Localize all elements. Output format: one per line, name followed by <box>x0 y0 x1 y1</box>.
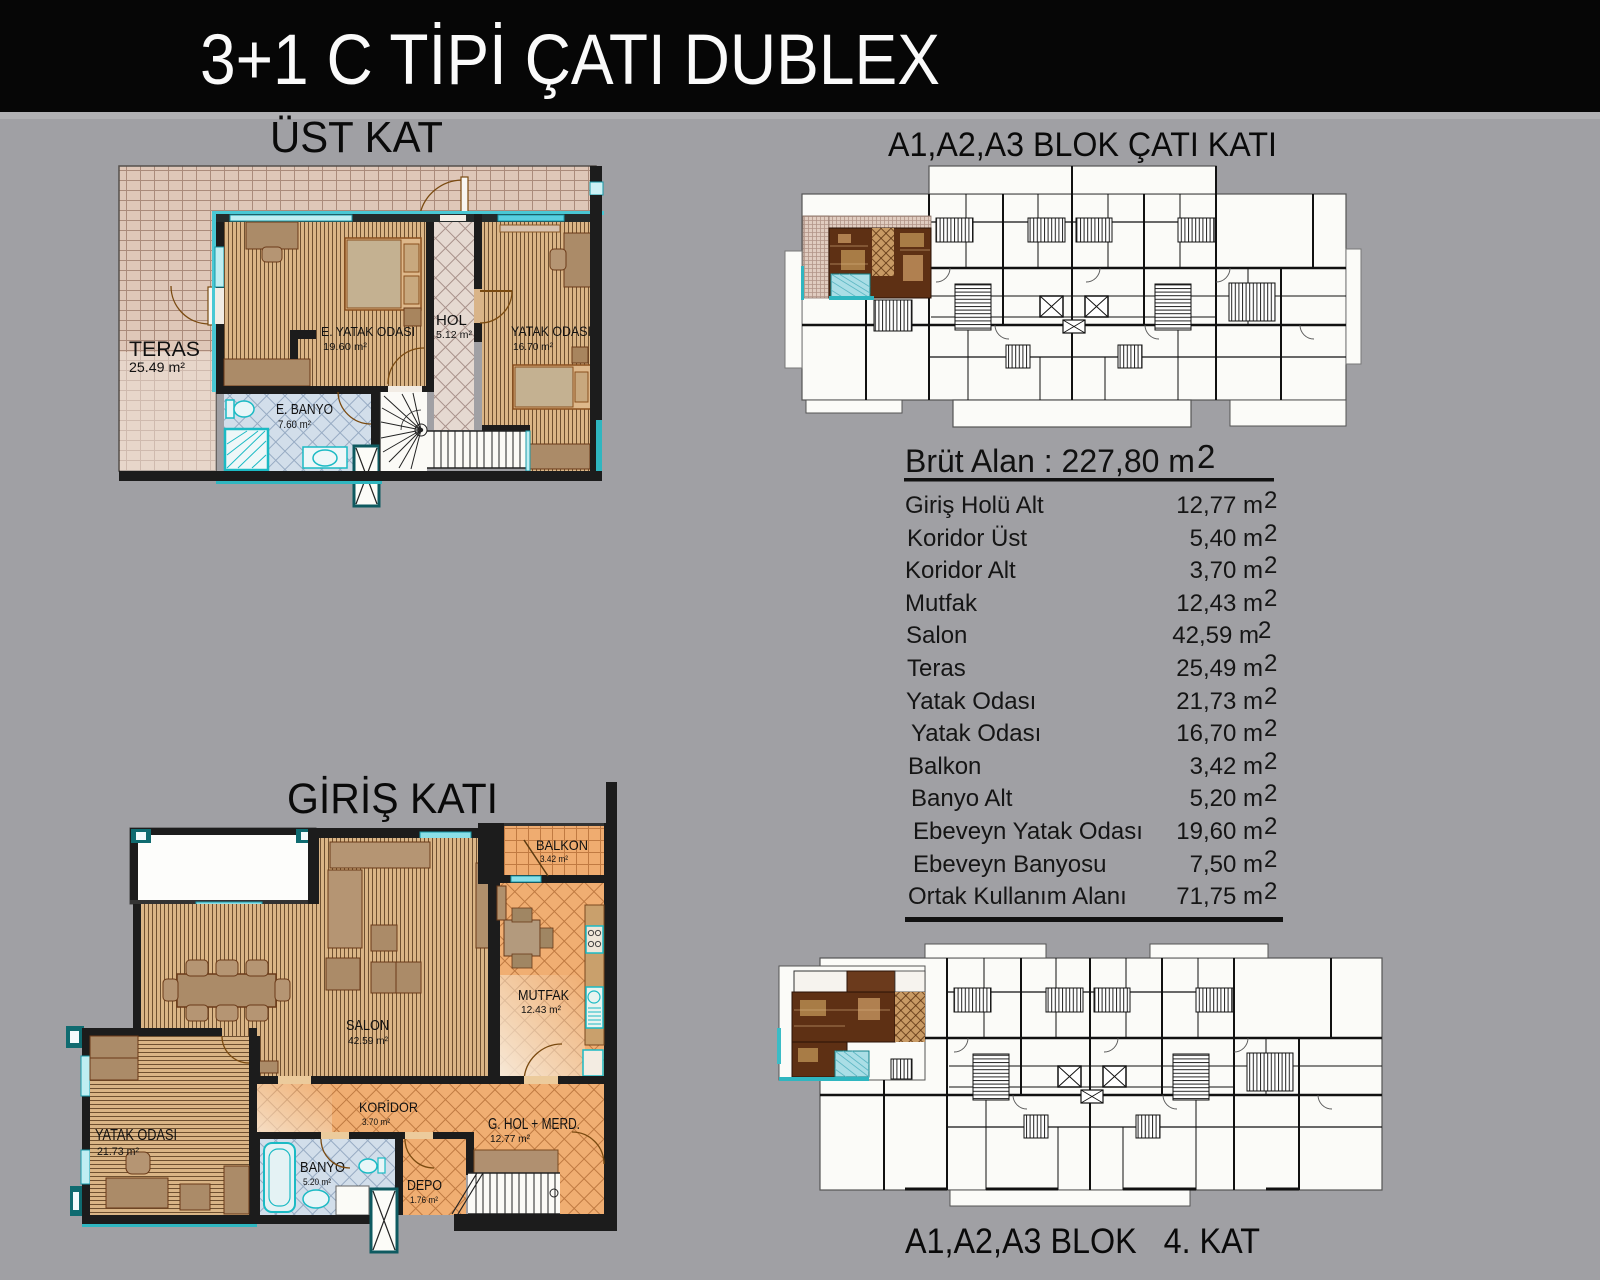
svg-text:2: 2 <box>1264 552 1277 579</box>
svg-text:Salon: Salon <box>906 622 967 649</box>
svg-text:12.43 m²: 12.43 m² <box>521 1004 561 1016</box>
svg-text:2: 2 <box>1264 813 1277 840</box>
svg-text:2: 2 <box>1264 878 1277 905</box>
svg-text:2: 2 <box>1264 520 1277 547</box>
svg-text:KORİDOR: KORİDOR <box>359 1098 418 1115</box>
svg-text:BANYO: BANYO <box>300 1159 345 1176</box>
svg-text:2: 2 <box>1197 438 1215 475</box>
svg-text:HOL: HOL <box>436 312 467 329</box>
svg-text:Teras: Teras <box>907 655 966 682</box>
svg-text:19,60 m: 19,60 m <box>1176 818 1263 845</box>
svg-text:G. HOL + MERD.: G. HOL + MERD. <box>488 1116 580 1133</box>
svg-text:SALON: SALON <box>346 1017 389 1034</box>
svg-text:3+1 C TİPİ ÇATI DUBLEX: 3+1 C TİPİ ÇATI DUBLEX <box>200 21 940 100</box>
svg-text:Yatak Odası: Yatak Odası <box>906 688 1036 715</box>
svg-text:2: 2 <box>1264 846 1277 873</box>
svg-text:2: 2 <box>1264 748 1277 775</box>
svg-text:Ebeveyn Banyosu: Ebeveyn Banyosu <box>913 851 1106 878</box>
svg-text:42.59 m²: 42.59 m² <box>348 1035 388 1047</box>
svg-text:19.60 m²: 19.60 m² <box>323 341 368 353</box>
svg-text:25,49 m: 25,49 m <box>1176 655 1263 682</box>
svg-text:21,73 m: 21,73 m <box>1176 688 1263 715</box>
svg-text:Giriş Holü Alt: Giriş Holü Alt <box>905 492 1044 519</box>
svg-text:2: 2 <box>1264 780 1277 807</box>
svg-text:21.73 m²: 21.73 m² <box>97 1146 139 1158</box>
svg-text:2: 2 <box>1264 683 1277 710</box>
svg-text:GİRİŞ KATI: GİRİŞ KATI <box>287 775 498 823</box>
svg-text:Brüt Alan : 227,80 m: Brüt Alan : 227,80 m <box>905 443 1195 479</box>
svg-text:3,70 m: 3,70 m <box>1190 557 1263 584</box>
svg-text:MUTFAK: MUTFAK <box>518 987 569 1004</box>
svg-text:TERAS: TERAS <box>129 338 200 361</box>
svg-text:YATAK ODASI: YATAK ODASI <box>95 1127 177 1144</box>
svg-text:A1,A2,A3 BLOK ÇATI KATI: A1,A2,A3 BLOK ÇATI KATI <box>888 126 1277 164</box>
svg-text:A1,A2,A3 BLOK 4. KAT: A1,A2,A3 BLOK 4. KAT <box>905 1222 1260 1261</box>
svg-text:3.70 m²: 3.70 m² <box>362 1117 390 1128</box>
svg-text:2: 2 <box>1258 617 1271 644</box>
svg-text:Banyo Alt: Banyo Alt <box>911 785 1013 812</box>
svg-text:E. YATAK ODASI: E. YATAK ODASI <box>321 324 415 339</box>
svg-text:7.60 m²: 7.60 m² <box>278 419 311 431</box>
svg-text:3.42 m²: 3.42 m² <box>540 854 568 865</box>
svg-text:2: 2 <box>1264 585 1277 612</box>
svg-text:Ortak Kullanım Alanı: Ortak Kullanım Alanı <box>908 883 1127 910</box>
svg-text:Mutfak: Mutfak <box>905 590 978 617</box>
svg-text:Yatak Odası: Yatak Odası <box>911 720 1041 747</box>
svg-text:5.12 m²: 5.12 m² <box>436 329 472 341</box>
svg-text:42,59 m: 42,59 m <box>1172 622 1259 649</box>
svg-text:5,40 m: 5,40 m <box>1190 525 1263 552</box>
svg-text:BALKON: BALKON <box>536 837 588 853</box>
svg-text:Koridor Alt: Koridor Alt <box>905 557 1016 584</box>
svg-text:16,70 m: 16,70 m <box>1176 720 1263 747</box>
svg-text:12.77 m²: 12.77 m² <box>490 1133 530 1145</box>
svg-text:2: 2 <box>1264 487 1277 514</box>
svg-text:1.76 m²: 1.76 m² <box>410 1195 438 1206</box>
svg-text:2: 2 <box>1264 715 1277 742</box>
svg-text:DEPO: DEPO <box>407 1177 442 1194</box>
svg-text:12,43 m: 12,43 m <box>1176 590 1263 617</box>
svg-text:7,50 m: 7,50 m <box>1190 851 1263 878</box>
svg-text:Koridor Üst: Koridor Üst <box>907 525 1027 552</box>
svg-text:E. BANYO: E. BANYO <box>276 401 333 418</box>
svg-text:5,20 m: 5,20 m <box>1190 785 1263 812</box>
svg-text:25.49 m²: 25.49 m² <box>129 360 186 375</box>
svg-text:Ebeveyn Yatak Odası: Ebeveyn Yatak Odası <box>913 818 1143 845</box>
svg-text:ÜST KAT: ÜST KAT <box>270 113 443 162</box>
svg-text:12,77 m: 12,77 m <box>1176 492 1263 519</box>
svg-text:16.70 m²: 16.70 m² <box>513 341 553 353</box>
svg-text:5.20 m²: 5.20 m² <box>303 1177 331 1188</box>
svg-text:71,75 m: 71,75 m <box>1176 883 1263 910</box>
svg-text:YATAK ODASI: YATAK ODASI <box>511 323 591 339</box>
svg-text:Balkon: Balkon <box>908 753 981 780</box>
svg-text:3,42 m: 3,42 m <box>1190 753 1263 780</box>
svg-text:2: 2 <box>1264 650 1277 677</box>
